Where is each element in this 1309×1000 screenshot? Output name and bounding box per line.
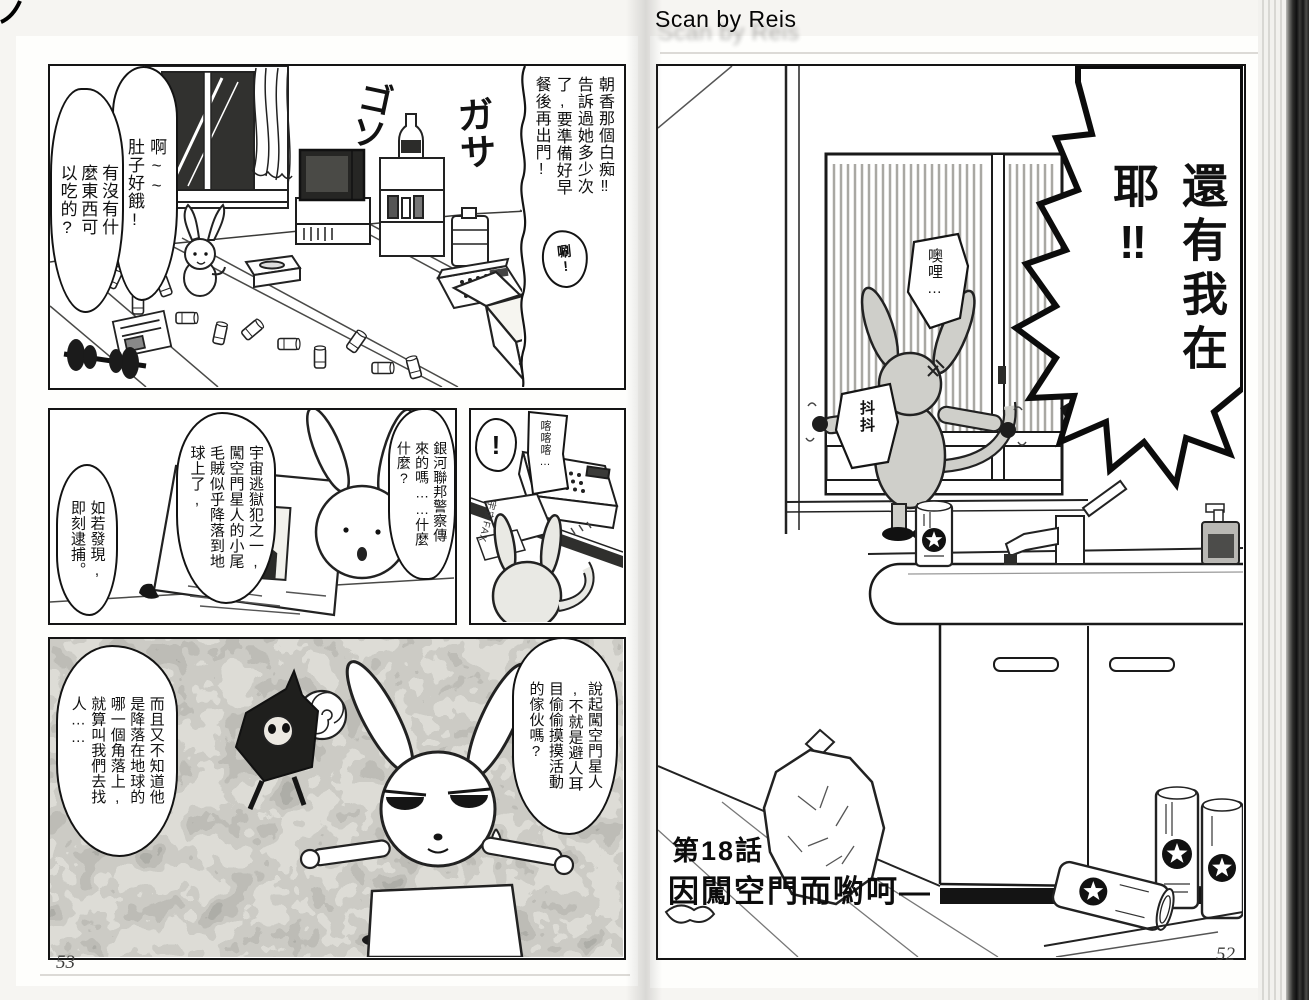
speech-bubble-arrest: 如若發現, 即刻逮捕。 [56,464,118,616]
book-spine-gutter [626,0,662,1000]
soap-bottle [1202,504,1239,564]
caption-asaka: 朝香那個白痴‼ 告訴過她多少次 了,要準備好早 餐後再出門! [522,66,623,387]
beer-can-counter [916,501,952,566]
book-edge-dark [1286,0,1309,1000]
beer-can-back [1202,799,1243,918]
tissue-box [246,256,300,287]
page-top-edge-shadow [660,52,1280,54]
sfx-gasa: ガサ [443,94,502,172]
carried-fax-paper [368,885,522,957]
tremble-text: 抖抖 [856,400,877,434]
sfx-clatter: 喀喀喀… [537,420,553,469]
speech-bubble-fugitive: 宇宙逃獄犯之一, 闖空門星人的小尾 毛賊似乎降落到地 球上了, [176,412,276,604]
ori-text: 噢哩… [924,248,945,298]
shout-text: 還有我在 耶‼ [1076,100,1236,440]
panel-fax-machine: ! 喀喀喀… 宇宙FAX [469,408,626,625]
page-stack-edge [1258,0,1286,1000]
water-jug [452,208,488,266]
rabbit-sitting [184,205,225,296]
chapter-number: 第18話 [672,838,764,865]
speech-bubble-search: 而且又不知道他 是降落在地球的 哪一個角落上, 就算叫我們去找 人…… [56,645,178,857]
corner-mark [0,0,28,24]
page-bottom-edge-shadow [40,974,630,976]
speech-bubble-hungry-b: 有沒有什 麼東西可 以吃的? [50,88,124,313]
panel-bathroom: 還有我在 耶‼ 噢哩… 抖抖 第18話 因闖空門而喲呵— [656,64,1246,960]
speech-bubble-galaxy: 銀河聯邦警察傳 來的嗎……什麼 什麼? [388,408,456,580]
manga-scan: Scan by Reis Scan by Reis 53 [0,0,1309,1000]
panel-chase: 而且又不知道他 是降落在地球的 哪一個角落上, 就算叫我們去找 人…… 說起闖空… [48,637,626,960]
panel-room: 啊~~ 肚子好餓! 有沒有什 麼東西可 以吃的? 朝香那個白痴‼ 告訴過她多少次… [48,64,626,390]
sfx-bubble-exclaim: ! [475,418,517,472]
scan-credit: Scan by Reis [655,6,797,33]
panel-fax-read: 宇宙FAX パラ 宇宙逃獄犯之一, 闖空門星人的小尾 毛賊似乎降落到地 球上了,… [48,408,457,625]
caption-wavy-divider [515,66,531,387]
shelf-unit [380,158,444,256]
page-number-right: 52 [1216,944,1235,966]
page-number-left: 53 [56,952,75,974]
magazine [113,311,171,357]
tv-set [296,150,370,244]
chapter-title: 因闖空門而喲呵— [668,876,932,907]
speech-bubble-sneak: 說起闖空門星人 ,不就是避人耳 目偷偷摸摸活動 的傢伙嗎? [512,637,618,835]
sake-bottle [399,114,423,158]
